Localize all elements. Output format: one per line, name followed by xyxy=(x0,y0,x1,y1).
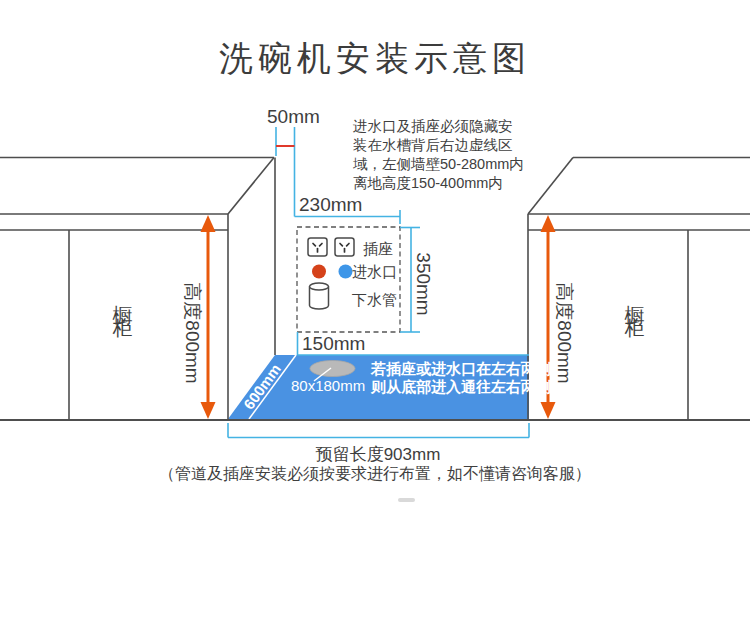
footer-note: （管道及插座安装必须按要求进行布置，如不懂请咨询客服） xyxy=(0,464,750,485)
install-note-line: 离地高度150-400mm内 xyxy=(353,174,503,193)
drain-pipe-icon xyxy=(310,283,329,309)
drain-pipe-label: 下水管 xyxy=(352,291,397,310)
left-cabinet-outline xyxy=(0,158,275,420)
install-note-line: 装在水槽背后右边虚线区 xyxy=(353,136,513,155)
floor-note-line1: 若插座或进水口在左右两侧 xyxy=(371,360,551,379)
diagram-canvas xyxy=(0,0,750,641)
floor-note-line2: 则从底部进入通往左右两侧 xyxy=(371,378,551,397)
reserved-length-label: 预留长度903mm xyxy=(128,443,628,466)
socket-label: 插座 xyxy=(363,240,393,259)
hot-inlet-dot-icon xyxy=(312,265,326,279)
dim-50mm-label: 50mm xyxy=(267,106,320,128)
installation-diagram: 洗碗机安装示意图 进水口及插座必须隐藏安 装在水槽背后右边虚线区 域，左侧墙壁5… xyxy=(0,0,750,641)
cold-inlet-dot-icon xyxy=(339,265,353,279)
install-note-line: 进水口及插座必须隐藏安 xyxy=(353,117,513,136)
hole-oval-icon xyxy=(310,361,355,377)
socket-icon xyxy=(308,238,327,256)
height-left-label: 高度800mm xyxy=(179,273,205,393)
divider-dash xyxy=(398,498,415,502)
height-right-label: 高度800mm xyxy=(551,273,577,393)
install-note-line: 域，左侧墙壁50-280mm内 xyxy=(353,155,524,174)
page-title: 洗碗机安装示意图 xyxy=(0,36,750,82)
dim-230mm-label: 230mm xyxy=(299,194,362,216)
cabinet-right-label: 橱柜 xyxy=(622,289,649,315)
hole-size-label: 80x180mm xyxy=(291,377,365,394)
dim-350mm-label: 350mm xyxy=(412,249,434,319)
water-inlet-label: 进水口 xyxy=(352,263,397,282)
dim-150mm-label: 150mm xyxy=(302,333,365,355)
socket-icon xyxy=(335,238,354,256)
cabinet-left-label: 橱柜 xyxy=(110,289,137,315)
